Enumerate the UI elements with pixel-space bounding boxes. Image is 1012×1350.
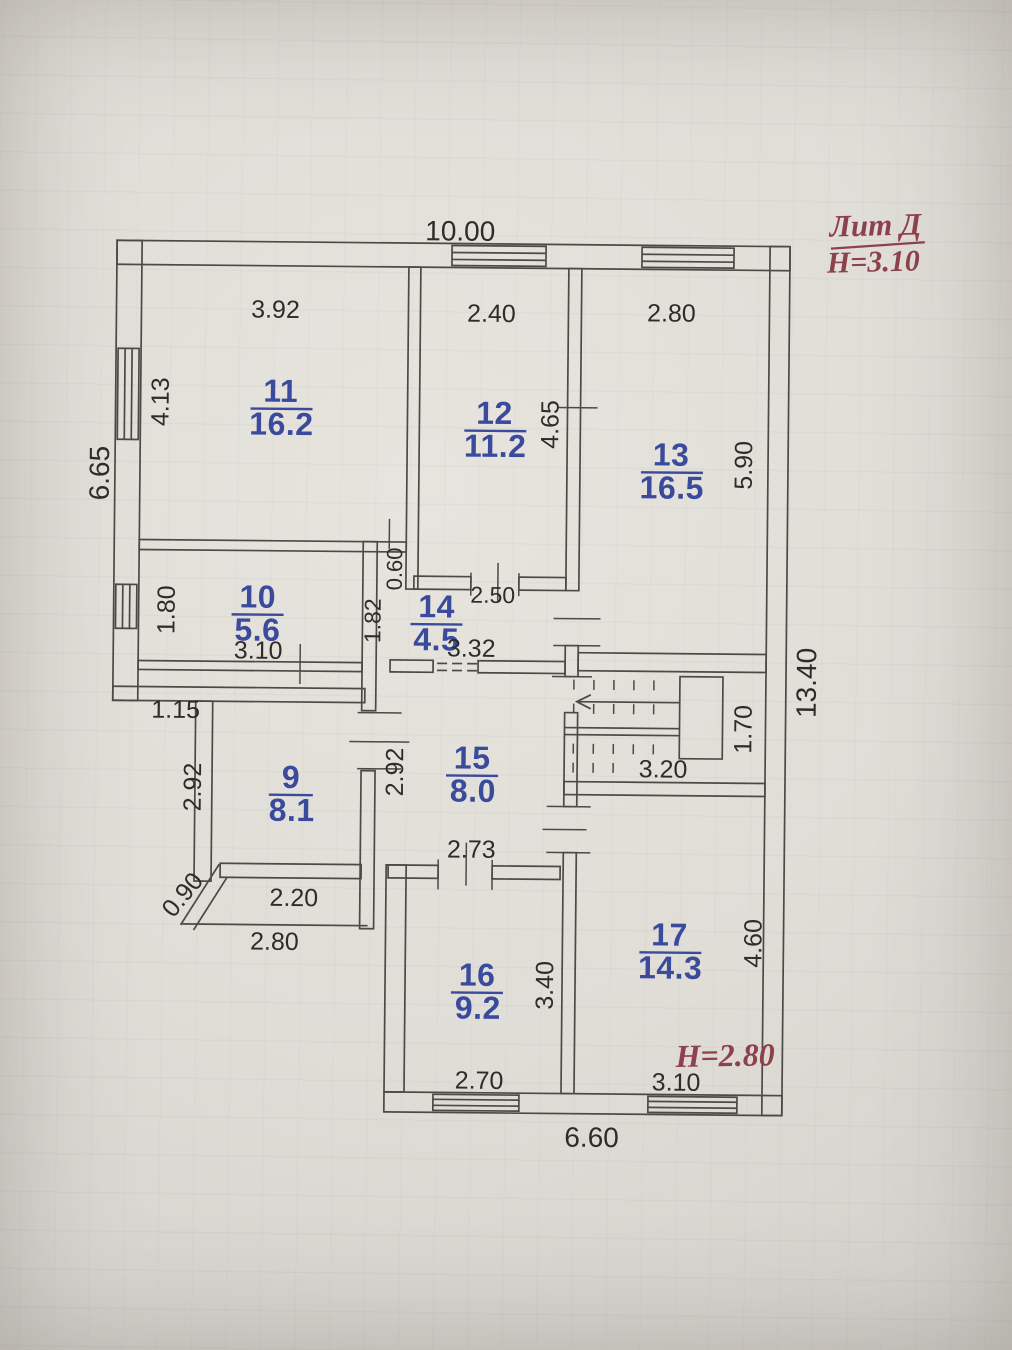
room-12-area: 11.2	[464, 428, 527, 465]
wall-room16-left	[384, 865, 406, 1092]
room-17-area: 14.3	[638, 949, 703, 986]
secondary-height-note: H=2.80	[674, 1036, 775, 1074]
dim-room9-height: 2.92	[179, 763, 207, 812]
dim-overall-right: 13.40	[791, 648, 823, 718]
window-bottom-2	[648, 1096, 737, 1113]
dim-room14-jog: 0.60	[382, 547, 407, 590]
floor-plan-photo: 11 16.2 12 11.2 13 16.5 10 5.6 14	[0, 0, 1012, 1350]
room-9-area: 8.1	[269, 792, 315, 828]
room-11-area: 16.2	[249, 406, 314, 443]
room-16-area: 9.2	[455, 990, 501, 1026]
floor-plan-drawing: 11 16.2 12 11.2 13 16.5 10 5.6 14	[0, 0, 1012, 1350]
room-16-number: 16	[459, 957, 496, 993]
stair-landing	[679, 677, 723, 759]
title-floor-height: H=3.10	[825, 244, 920, 279]
room-11-number: 11	[263, 373, 298, 409]
dim-room16-width: 2.70	[455, 1067, 504, 1095]
room-9-number: 9	[282, 759, 301, 795]
wall-room9-bottom-outer	[182, 924, 368, 926]
wall-stair-bottom	[564, 782, 765, 797]
opening-dashed-room14	[437, 663, 477, 670]
dim-room13-width: 2.80	[647, 299, 696, 327]
dim-room12-width: 2.40	[467, 300, 516, 328]
dim-room10-height: 1.80	[152, 585, 180, 634]
dim-room12-lower-width: 2.50	[470, 582, 515, 608]
wall-14-bottom-a	[390, 660, 433, 672]
wall-15-17-upper	[564, 713, 578, 807]
room-15-label: 15 8.0	[446, 739, 499, 808]
dim-room11-width: 3.92	[251, 296, 300, 324]
wall-11-12	[406, 267, 421, 589]
wall-exterior-left	[113, 240, 142, 700]
dim-overall-bottom: 6.60	[564, 1122, 619, 1154]
dim-room15-height: 2.92	[381, 747, 409, 796]
room-9-label: 9 8.1	[269, 759, 316, 828]
secondary-floor-height: H=2.80	[674, 1036, 775, 1074]
wall-12-13-lower	[565, 646, 578, 677]
dim-stairs-width: 3.20	[639, 755, 688, 783]
dimension-labels: 10.00 6.65 13.40 6.60 3.92 4.13 2.40 4.6…	[77, 212, 826, 1155]
wall-12-bottom-b	[519, 577, 566, 590]
window-left-1	[117, 348, 139, 439]
dim-room17-height: 4.60	[739, 919, 767, 968]
room-12-label: 12 11.2	[464, 395, 527, 465]
wall-9-15	[360, 771, 376, 929]
wall-15-16-a	[388, 865, 438, 878]
dim-room12-height: 4.65	[536, 400, 564, 449]
dim-room15-width: 2.73	[447, 835, 496, 863]
wall-12-13-upper	[566, 269, 582, 591]
dim-room9-entry-offset: 1.15	[151, 696, 200, 724]
title-block: Лит Д H=3.10	[824, 206, 925, 279]
window-left-2	[115, 584, 136, 628]
room-15-area: 8.0	[450, 772, 496, 808]
wall-exterior-right	[762, 247, 790, 1116]
dim-room14-height: 1.82	[359, 598, 385, 643]
dim-room9-width: 2.20	[269, 884, 318, 912]
room-15-number: 15	[454, 740, 491, 776]
dim-room14-width: 3.32	[447, 634, 496, 662]
dim-room11-height: 4.13	[146, 377, 174, 426]
wall-exterior-bottom	[384, 1092, 782, 1116]
room-17-label: 17 14.3	[638, 916, 703, 986]
room-14-number: 14	[418, 588, 455, 624]
room-labels: 11 16.2 12 11.2 13 16.5 10 5.6 14	[228, 372, 708, 1028]
dim-room13-height: 5.90	[730, 441, 758, 490]
room-12-number: 12	[476, 395, 513, 431]
room-10-number: 10	[239, 578, 276, 614]
dim-room10-width: 3.10	[234, 636, 283, 664]
dim-room9-chamfer: 0.90	[156, 867, 209, 922]
dim-room9-outer-width: 2.80	[250, 928, 299, 956]
wall-15-16-b	[492, 866, 560, 880]
wall-room9-bottom-inner	[220, 863, 361, 878]
dim-overall-top: 10.00	[425, 215, 495, 247]
room-11-label: 11 16.2	[249, 373, 314, 443]
stair-direction-arrow	[577, 695, 680, 710]
dim-room16-height: 3.40	[531, 961, 559, 1010]
room-13-number: 13	[653, 436, 690, 472]
room-13-label: 13 16.5	[639, 436, 704, 506]
dim-overall-left: 6.65	[84, 446, 116, 501]
room-16-label: 16 9.2	[451, 956, 504, 1025]
dim-stairs-landing-depth: 1.70	[729, 705, 757, 754]
wall-15-17-lower	[561, 853, 576, 1094]
window-top-1	[452, 245, 546, 266]
stair-mid-rails	[564, 728, 679, 736]
window-top-2	[642, 247, 734, 268]
wall-13-bottom	[578, 653, 766, 673]
room-13-area: 16.5	[639, 469, 704, 506]
title-litera: Лит Д	[827, 206, 923, 243]
room-17-number: 17	[651, 916, 688, 952]
window-bottom-1	[433, 1094, 519, 1111]
